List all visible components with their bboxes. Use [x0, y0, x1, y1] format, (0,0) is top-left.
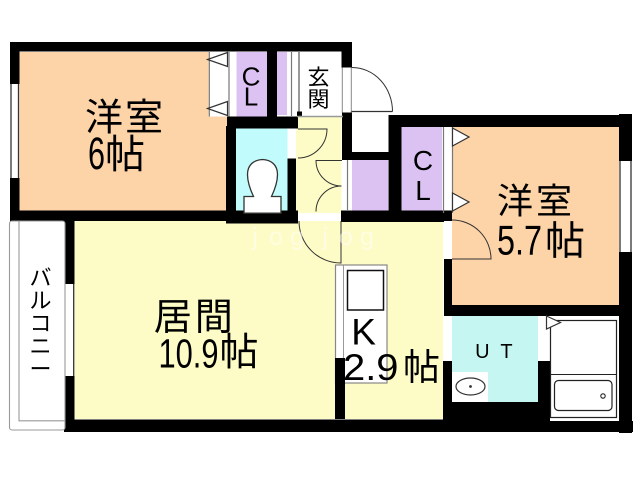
svg-text:10.9: 10.9	[159, 331, 219, 377]
svg-text:5.7: 5.7	[497, 217, 542, 264]
svg-text:o: o	[269, 223, 283, 251]
svg-text:2.9: 2.9	[343, 347, 399, 388]
svg-text:T: T	[500, 341, 512, 363]
svg-text:j: j	[251, 223, 258, 251]
svg-text:L: L	[244, 82, 258, 112]
svg-text:g: g	[360, 223, 374, 251]
svg-text:j: j	[321, 223, 328, 251]
svg-text:g: g	[290, 223, 304, 251]
svg-text:C: C	[413, 145, 433, 176]
svg-text:U: U	[475, 341, 489, 363]
svg-text:6: 6	[88, 128, 105, 179]
svg-text:L: L	[415, 175, 431, 206]
svg-text:o: o	[339, 223, 353, 251]
